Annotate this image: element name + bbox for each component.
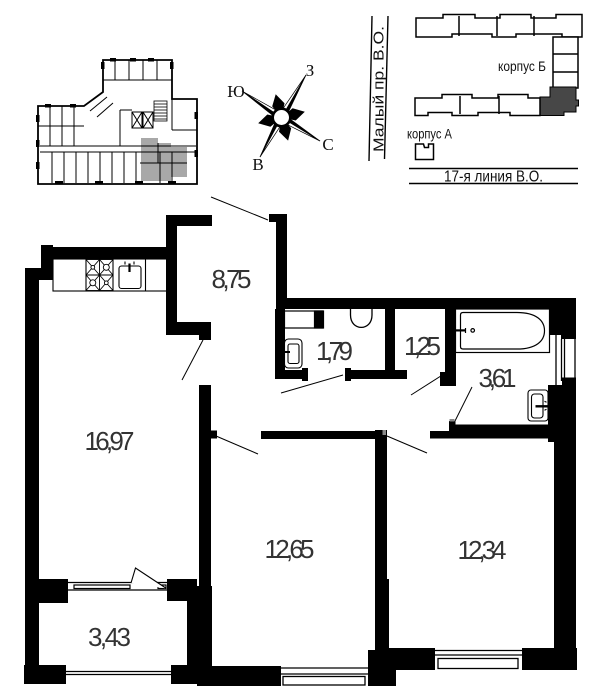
svg-text:С: С: [322, 135, 333, 154]
svg-text:корпус А: корпус А: [407, 127, 452, 142]
svg-text:3,61: 3,61: [479, 363, 517, 393]
svg-text:8,75: 8,75: [212, 264, 252, 294]
svg-text:3,43: 3,43: [88, 622, 131, 652]
svg-text:16,97: 16,97: [85, 426, 135, 456]
svg-text:З: З: [306, 61, 315, 80]
svg-text:12,34: 12,34: [458, 535, 507, 565]
svg-text:1,79: 1,79: [316, 336, 353, 366]
svg-text:В: В: [252, 155, 263, 174]
svg-text:1,25: 1,25: [404, 331, 441, 361]
svg-text:Ю: Ю: [227, 82, 244, 101]
svg-text:17-я линия В.О.: 17-я линия В.О.: [444, 169, 543, 186]
svg-text:12,65: 12,65: [265, 534, 315, 564]
svg-text:Малый пр. В.О.: Малый пр. В.О.: [371, 26, 388, 152]
svg-text:корпус Б: корпус Б: [498, 59, 546, 74]
